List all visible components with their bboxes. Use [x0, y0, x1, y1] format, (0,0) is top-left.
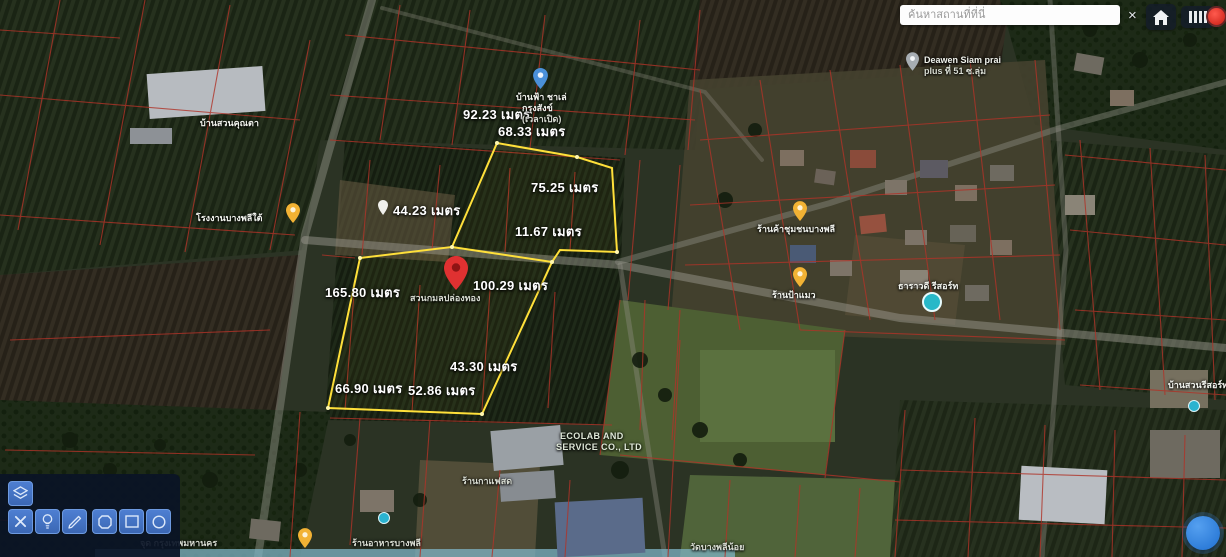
- action-fab-button[interactable]: [1186, 516, 1220, 550]
- rectangle-icon: [125, 515, 139, 528]
- poi-label: (เวลาเปิด): [522, 114, 561, 125]
- teal-poi-icon[interactable]: [922, 292, 942, 312]
- satellite-map[interactable]: [0, 0, 1226, 557]
- poi-label: ร้านกาแฟสด: [462, 476, 512, 487]
- clear-search-icon[interactable]: ×: [1128, 7, 1137, 24]
- search-input[interactable]: [900, 5, 1120, 25]
- home-icon: [1153, 10, 1169, 25]
- clear-icon: [14, 515, 27, 528]
- yellow-poi-pin-icon[interactable]: [793, 267, 807, 287]
- layers-icon: [13, 486, 28, 501]
- idea-tool-button[interactable]: [35, 509, 60, 534]
- poi-label: Deawen Siam prai: [924, 55, 1001, 66]
- poi-label: กรุงสังข์: [522, 103, 553, 114]
- yellow-poi-pin-icon[interactable]: [793, 201, 807, 221]
- home-button[interactable]: [1146, 4, 1176, 30]
- measurement-label: 165.80 เมตร: [325, 282, 400, 303]
- poi-label: ร้านป้าแมว: [772, 290, 816, 301]
- layers-list-icon: [1189, 11, 1207, 23]
- blue-dot-poi-icon[interactable]: [378, 512, 390, 524]
- polygon-icon: [98, 515, 112, 529]
- search-bar: ×: [900, 5, 1137, 25]
- clear-tool-button[interactable]: [8, 509, 33, 534]
- rectangle-tool-button[interactable]: [119, 509, 144, 534]
- poi-label: ร้านค้าชุมชนบางพลี: [757, 224, 835, 235]
- pin-place-label: สวนกมลปล่องทอง: [410, 293, 480, 304]
- poi-label: บ้านสวนรีสอร์ท: [1168, 380, 1226, 391]
- draw-tool-button[interactable]: [62, 509, 87, 534]
- poi-label: บ้านสวนคุณตา: [200, 118, 259, 129]
- measurement-label: 75.25 เมตร: [531, 177, 599, 198]
- circle-tool-button[interactable]: [146, 509, 171, 534]
- layers-tool-button[interactable]: [8, 481, 33, 506]
- lightbulb-icon: [41, 514, 54, 529]
- measurement-label: 52.86 เมตร: [408, 380, 476, 401]
- polygon-tool-button[interactable]: [92, 509, 117, 534]
- poi-label: ร้านอาหารบางพลี: [352, 538, 421, 549]
- poi-label: ธาราวดี รีสอร์ท: [898, 281, 958, 292]
- company-label: SERVICE CO., LTD: [556, 442, 642, 453]
- measurement-label: 43.30 เมตร: [450, 356, 518, 377]
- grey-poi-pin-icon[interactable]: [906, 52, 919, 71]
- location-pin-icon[interactable]: [444, 256, 468, 290]
- measurement-label: 66.90 เมตร: [335, 378, 403, 399]
- measurement-label: 44.23 เมตร: [393, 200, 461, 221]
- measurement-label: 11.67 เมตร: [515, 221, 582, 242]
- blue-poi-pin-icon[interactable]: [533, 68, 548, 89]
- poi-label: วัดบางพลีน้อย: [690, 542, 744, 553]
- record-location-button[interactable]: [1206, 6, 1226, 27]
- map-application: 92.23 เมตร 68.33 เมตร 75.25 เมตร 44.23 เ…: [0, 0, 1226, 557]
- poi-label: บ้านฟ้า ชาเล่: [516, 92, 567, 103]
- blue-dot-poi-icon[interactable]: [1188, 400, 1200, 412]
- pencil-icon: [68, 515, 82, 529]
- white-mini-marker-icon: [378, 200, 388, 215]
- measurement-label: 100.29 เมตร: [473, 275, 548, 296]
- circle-icon: [152, 515, 166, 529]
- poi-label: โรงงานบางพลีใต้: [196, 213, 263, 224]
- poi-label: plus ที่ 51 ซ.ลุ่ม: [924, 66, 986, 77]
- yellow-poi-pin-icon[interactable]: [298, 528, 312, 548]
- company-label: ECOLAB AND: [560, 431, 624, 442]
- yellow-poi-pin-icon[interactable]: [286, 203, 300, 223]
